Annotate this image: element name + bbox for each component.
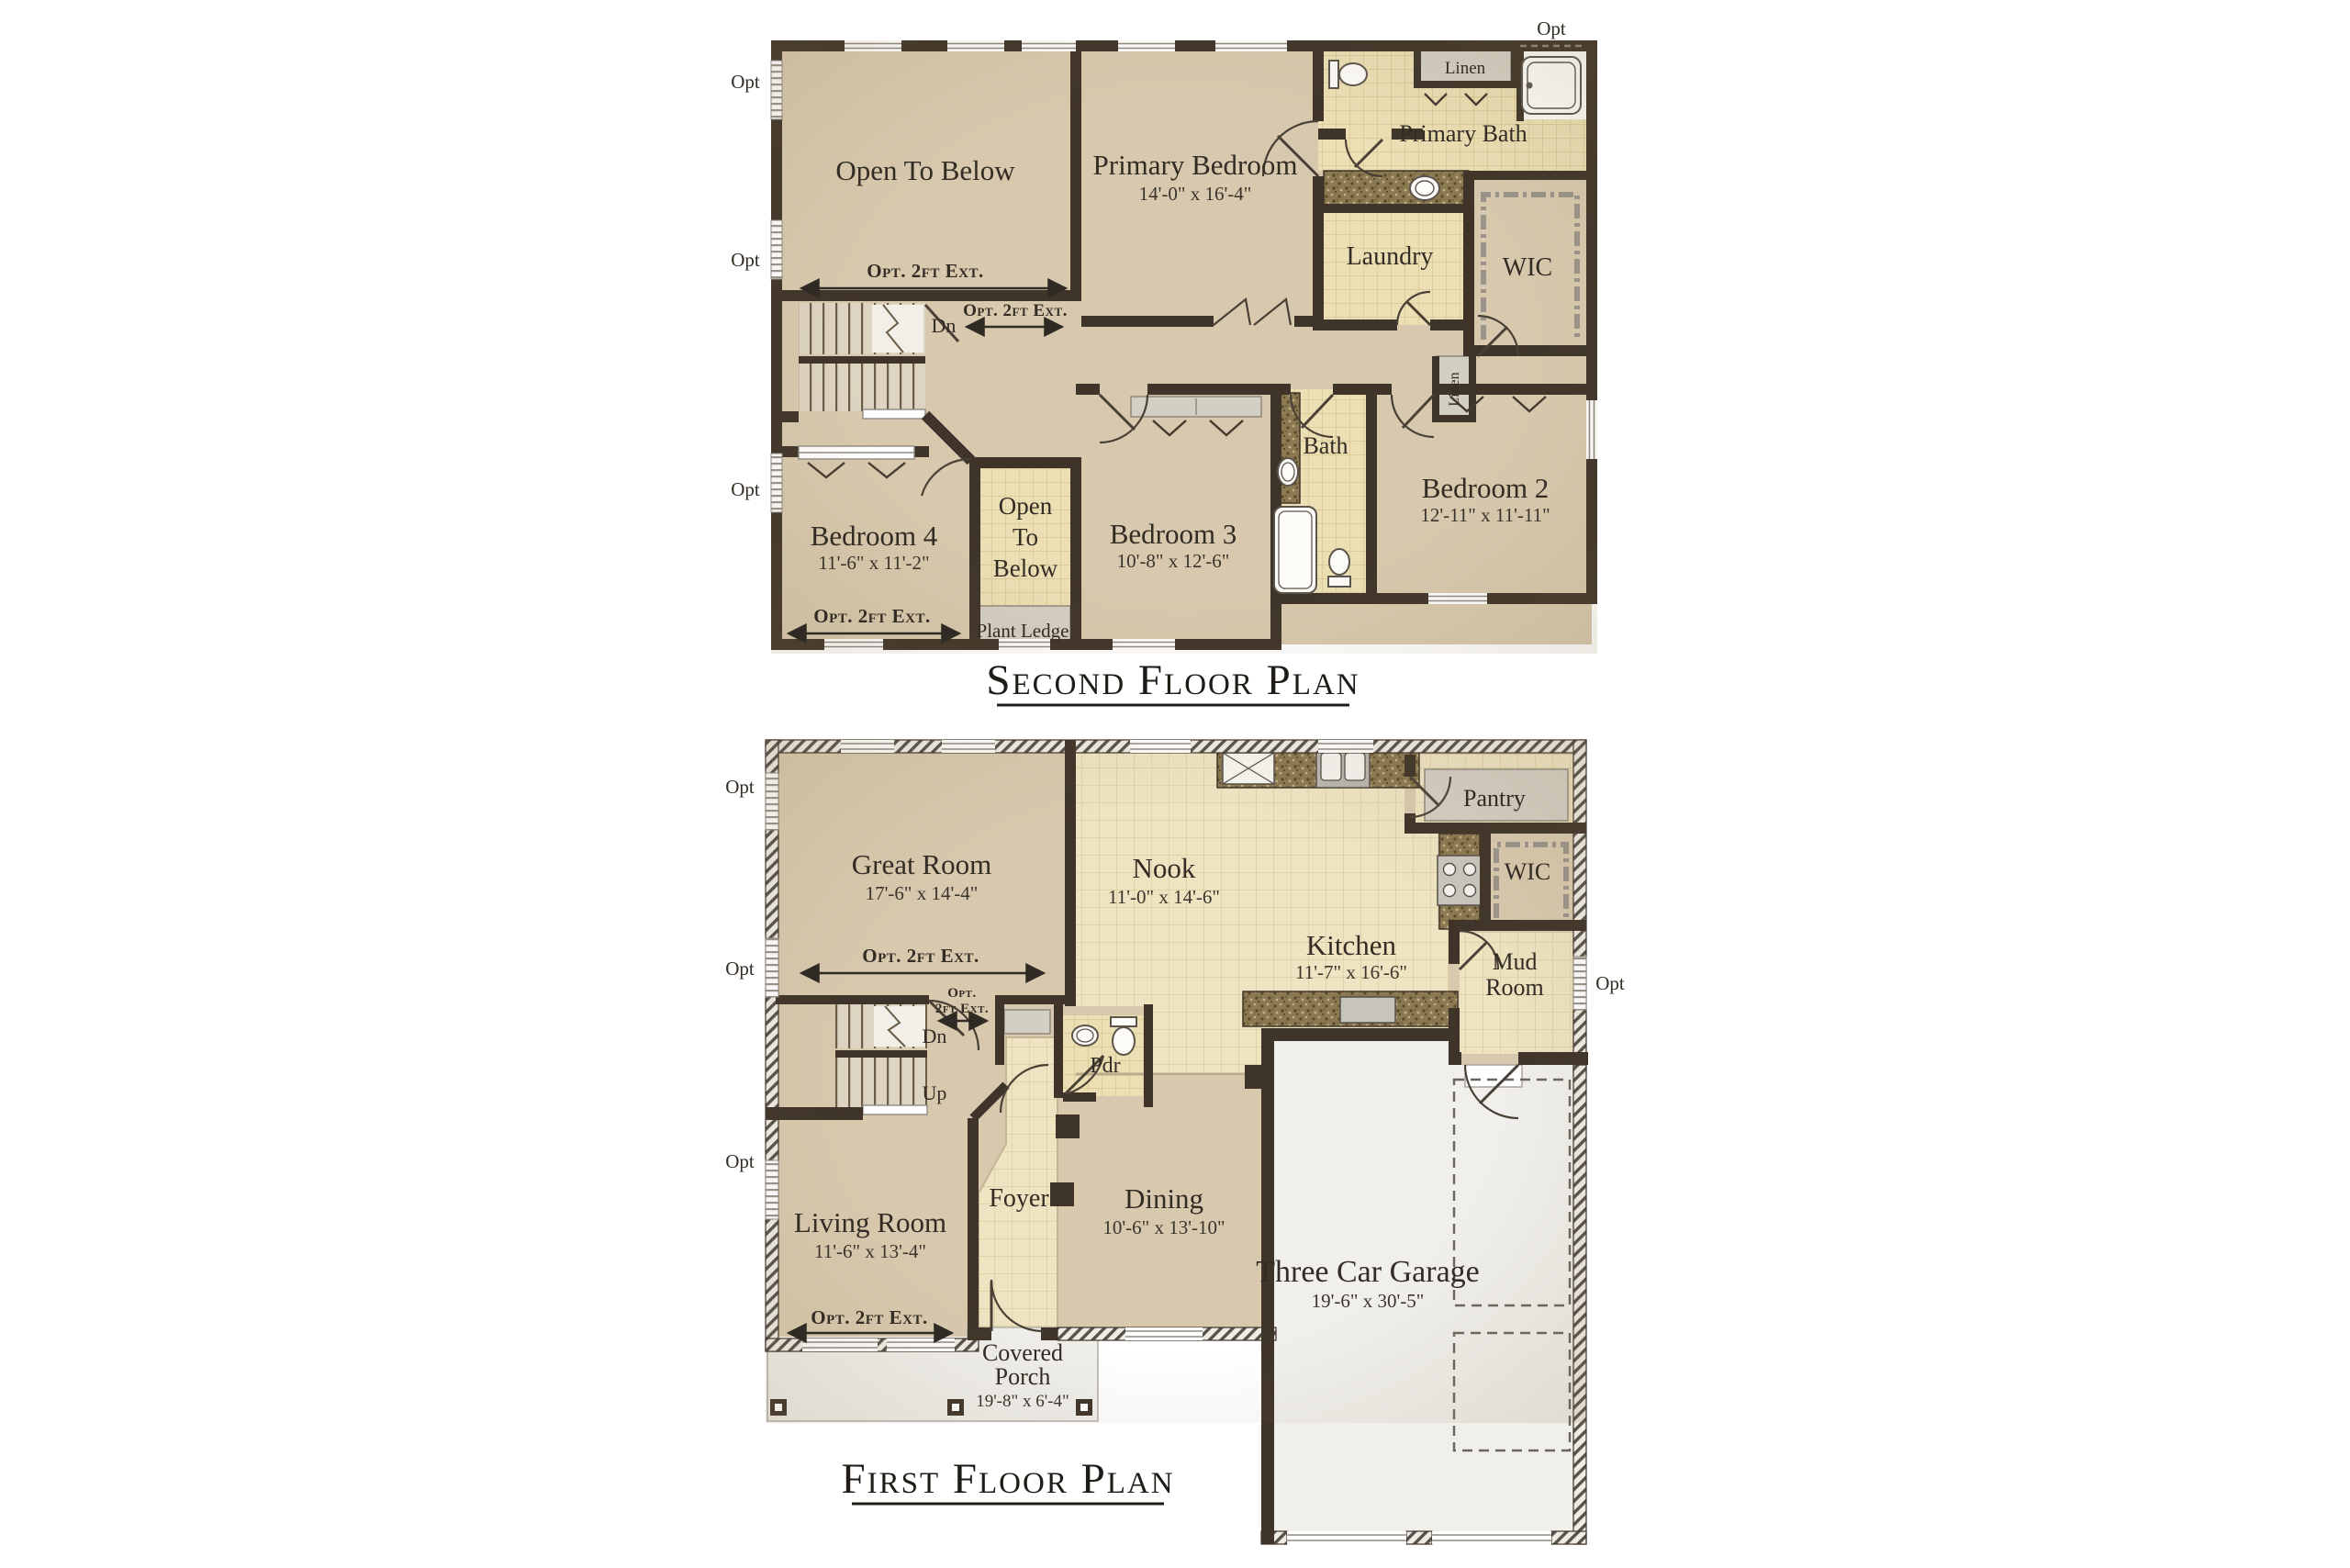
room-dims-nook: 11'-0" x 14'-6" bbox=[1108, 886, 1220, 908]
room-label-living-room: Living Room bbox=[794, 1206, 946, 1238]
room-label-open-small-2: To bbox=[1013, 523, 1038, 551]
first-floor-plan: Great Room 17'-6" x 14'-4" Opt. 2ft Ext.… bbox=[725, 740, 1625, 1544]
second-floor-stairs bbox=[799, 303, 925, 419]
room-label-bath: Bath bbox=[1303, 432, 1348, 459]
room-dims-porch: 19'-8" x 6'-4" bbox=[976, 1392, 1069, 1411]
opt-ext-label-living: Opt. 2ft Ext. bbox=[811, 1306, 928, 1328]
room-label-pdr: Pdr bbox=[1090, 1054, 1120, 1078]
opt-ext-label-bedroom4: Opt. 2ft Ext. bbox=[813, 605, 931, 627]
room-label-porch-1: Covered bbox=[982, 1339, 1063, 1366]
floor-plan-drawing: Open To Below Opt. 2ft Ext. Primary Bedr… bbox=[0, 0, 2350, 1568]
label-opt-left-3: Opt bbox=[731, 478, 760, 500]
room-label-open-small-3: Below bbox=[993, 554, 1058, 582]
opt-ext-label-mid: Opt. 2ft Ext. bbox=[963, 301, 1068, 320]
label-opt-left-1f-2: Opt bbox=[725, 958, 755, 980]
label-opt-left-2: Opt bbox=[731, 249, 760, 271]
first-floor-stairs bbox=[835, 1004, 927, 1114]
opt-ext-small-1: Opt. bbox=[947, 986, 976, 1001]
second-floor-title: Second Floor Plan bbox=[986, 656, 1360, 704]
room-label-open-to-below: Open To Below bbox=[835, 154, 1015, 186]
room-dims-bedroom4: 11'-6" x 11'-2" bbox=[818, 552, 929, 574]
label-up-first: Up bbox=[923, 1081, 947, 1104]
room-label-garage: Three Car Garage bbox=[1256, 1255, 1480, 1289]
powder-toilet-icon bbox=[1111, 1017, 1136, 1055]
room-label-primary-bedroom: Primary Bedroom bbox=[1093, 149, 1298, 181]
room-label-bedroom4: Bedroom 4 bbox=[811, 520, 938, 552]
room-dims-great-room: 17'-6" x 14'-4" bbox=[866, 882, 979, 904]
room-label-mud-1: Mud bbox=[1492, 948, 1537, 975]
room-label-laundry: Laundry bbox=[1347, 242, 1434, 271]
room-label-great-room: Great Room bbox=[852, 848, 991, 880]
label-plant-ledge: Plant Ledge bbox=[977, 620, 1069, 642]
room-label-wic: WIC bbox=[1503, 253, 1552, 282]
vanity-counter bbox=[1324, 171, 1469, 206]
room-label-bedroom3: Bedroom 3 bbox=[1110, 518, 1237, 550]
label-opt-top: Opt bbox=[1537, 17, 1566, 39]
label-opt-left-1: Opt bbox=[731, 71, 760, 93]
vanity-sink-icon bbox=[1410, 176, 1439, 200]
hall-toilet-icon bbox=[1328, 549, 1350, 587]
room-dims-bedroom2: 12'-11" x 11'-11" bbox=[1420, 504, 1550, 526]
coat-closet-shelf bbox=[1004, 1010, 1050, 1034]
room-label-open-small-1: Open bbox=[999, 492, 1053, 520]
opt-ext-label-open-to-below: Opt. 2ft Ext. bbox=[867, 260, 984, 282]
room-dims-primary-bedroom: 14'-0" x 16'-4" bbox=[1139, 183, 1252, 205]
room-label-wic: WIC bbox=[1505, 858, 1551, 885]
label-opt-right: Opt bbox=[1595, 972, 1625, 994]
opt-ext-label-great-room: Opt. 2ft Ext. bbox=[862, 945, 979, 967]
powder-sink-icon bbox=[1072, 1025, 1098, 1046]
second-floor-plan: Open To Below Opt. 2ft Ext. Primary Bedr… bbox=[731, 17, 1597, 705]
room-dims-bedroom3: 10'-8" x 12'-6" bbox=[1117, 550, 1230, 572]
stove-icon bbox=[1438, 856, 1482, 905]
bathtub-icon bbox=[1522, 57, 1581, 114]
room-label-porch-2: Porch bbox=[995, 1363, 1051, 1390]
room-label-foyer: Foyer bbox=[989, 1184, 1049, 1213]
first-floor-title: First Floor Plan bbox=[841, 1455, 1174, 1503]
hall-bath-sink-icon bbox=[1278, 458, 1298, 486]
label-linen: Linen bbox=[1445, 59, 1486, 78]
floor-plan-sheet: Open To Below Opt. 2ft Ext. Primary Bedr… bbox=[0, 0, 2350, 1568]
room-dims-dining: 10'-6" x 13'-10" bbox=[1102, 1216, 1225, 1238]
toilet-icon bbox=[1329, 61, 1367, 88]
label-opt-left-1f-1: Opt bbox=[725, 776, 755, 798]
room-label-pantry: Pantry bbox=[1463, 785, 1526, 812]
label-opt-left-1f-3: Opt bbox=[725, 1150, 755, 1172]
room-label-primary-bath: Primary Bath bbox=[1399, 120, 1527, 147]
room-label-bedroom2: Bedroom 2 bbox=[1422, 472, 1550, 504]
opt-ext-small-2: 2ft Ext. bbox=[935, 1002, 989, 1016]
room-dims-living-room: 11'-6" x 13'-4" bbox=[814, 1240, 926, 1262]
room-label-kitchen: Kitchen bbox=[1306, 929, 1397, 961]
label-dn-first: Dn bbox=[923, 1025, 947, 1047]
dishwasher-icon bbox=[1340, 997, 1395, 1023]
hall-bathtub-icon bbox=[1274, 507, 1316, 593]
room-dims-garage: 19'-6" x 30'-5" bbox=[1312, 1290, 1425, 1312]
room-dims-kitchen: 11'-7" x 16'-6" bbox=[1295, 961, 1407, 983]
label-dn: Dn bbox=[932, 314, 957, 337]
room-label-nook: Nook bbox=[1133, 852, 1196, 884]
room-label-mud-2: Room bbox=[1485, 974, 1544, 1001]
room-label-dining: Dining bbox=[1125, 1182, 1203, 1215]
label-linen-vertical: Linen bbox=[1447, 372, 1462, 406]
